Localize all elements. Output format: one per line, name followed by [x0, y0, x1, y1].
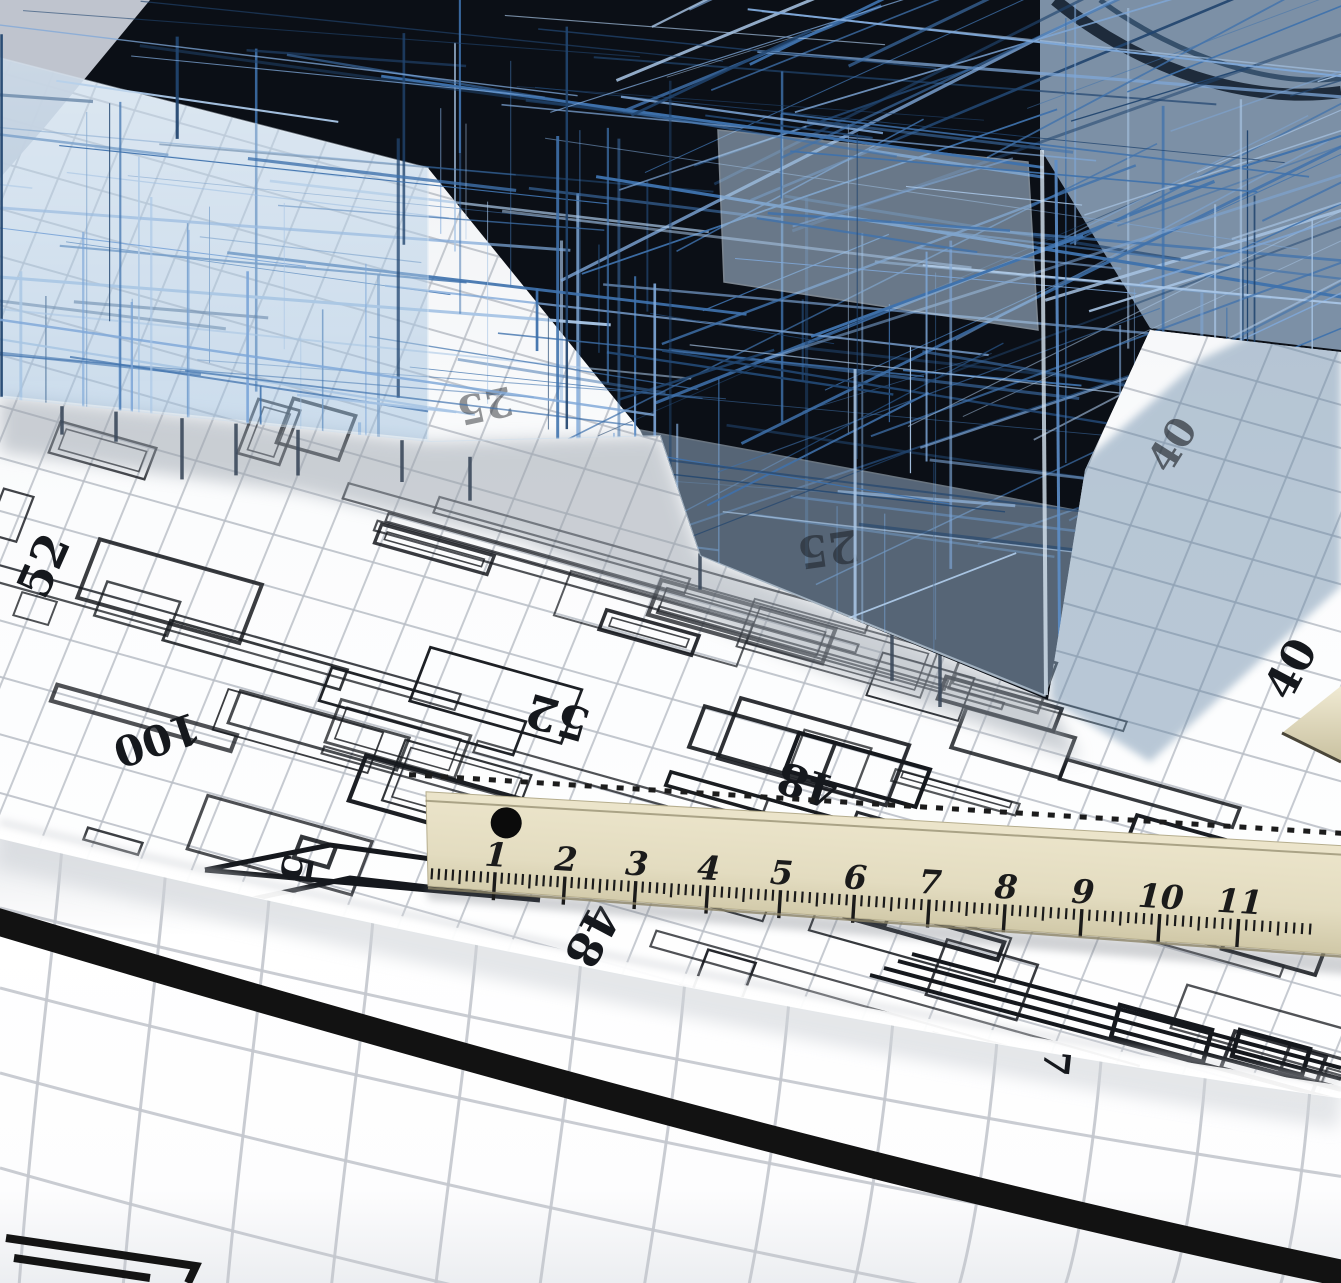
generated-line — [809, 892, 810, 903]
generated-line — [765, 889, 766, 900]
generated-line — [593, 878, 594, 889]
generated-line — [508, 873, 509, 884]
generated-line — [787, 891, 788, 902]
generated-line — [853, 895, 855, 923]
generated-line — [571, 877, 572, 888]
generated-line — [1136, 913, 1137, 924]
generated-line — [550, 876, 551, 887]
generated-line — [1310, 924, 1311, 935]
generated-line — [1302, 923, 1303, 934]
generated-line — [493, 872, 495, 900]
generated-line — [861, 895, 862, 906]
generated-line — [1027, 906, 1028, 917]
generated-line — [869, 896, 870, 907]
generated-line — [1074, 909, 1075, 920]
generated-line — [515, 874, 516, 885]
generated-line — [607, 879, 608, 890]
generated-line — [714, 886, 715, 897]
generated-line — [729, 887, 730, 898]
ruler-number: 8 — [992, 867, 1018, 907]
ruler-number: 5 — [769, 853, 794, 893]
generated-line — [997, 904, 998, 915]
generated-line — [1020, 905, 1021, 916]
generated-line — [693, 885, 694, 896]
generated-line — [628, 881, 629, 892]
ruler-number: 9 — [1070, 872, 1095, 912]
generated-line — [773, 890, 774, 901]
generated-line — [751, 888, 752, 899]
generated-line — [824, 893, 825, 904]
generated-line — [1183, 916, 1184, 927]
generated-line — [1278, 922, 1279, 936]
generated-line — [1080, 909, 1082, 937]
generated-line — [1158, 914, 1160, 942]
generated-line — [1222, 918, 1223, 929]
generated-line — [621, 880, 622, 891]
generated-line — [529, 874, 530, 888]
generated-line — [1043, 907, 1044, 921]
generated-line — [439, 869, 440, 880]
generated-line — [452, 870, 453, 881]
generated-line — [832, 893, 833, 904]
generated-line — [459, 870, 460, 884]
generated-line — [1230, 919, 1231, 930]
generated-line — [1050, 907, 1051, 918]
generated-line — [1167, 915, 1168, 926]
generated-line — [466, 870, 467, 881]
generated-line — [1128, 912, 1129, 923]
generated-line — [700, 885, 701, 896]
generated-line — [1003, 904, 1005, 932]
generated-line — [536, 875, 537, 886]
scene-image: 52 100 52 48 48 5 40 40 7 25 25 1 — [0, 0, 1341, 1283]
generated-line — [951, 901, 952, 912]
generated-line — [649, 882, 650, 893]
generated-line — [1270, 921, 1271, 932]
generated-line — [473, 871, 474, 882]
generated-line — [1097, 910, 1098, 921]
generated-line — [501, 873, 502, 884]
generated-line — [914, 899, 915, 910]
ruler-number: 10 — [1137, 876, 1185, 918]
ruler-number: 7 — [918, 862, 943, 902]
generated-line — [839, 894, 840, 905]
generated-line — [795, 891, 796, 902]
architectural-render-scene: 52 100 52 48 48 5 40 40 7 25 25 1 — [0, 0, 1341, 1283]
generated-line — [1120, 912, 1121, 926]
generated-line — [936, 900, 937, 911]
generated-line — [989, 903, 990, 914]
generated-line — [671, 883, 672, 897]
generated-line — [432, 868, 433, 879]
generated-line — [884, 897, 885, 908]
generated-line — [1254, 920, 1255, 931]
generated-line — [817, 893, 818, 907]
generated-line — [743, 888, 744, 902]
generated-line — [1206, 917, 1207, 928]
generated-line — [1058, 908, 1059, 919]
generated-line — [876, 896, 877, 907]
generated-line — [445, 869, 446, 880]
generated-line — [1089, 910, 1090, 921]
generated-line — [899, 898, 900, 909]
generated-line — [543, 875, 544, 886]
ruler-number: 4 — [696, 848, 721, 888]
ruler-number: 6 — [843, 857, 868, 897]
generated-line — [1237, 919, 1239, 947]
generated-line — [944, 901, 945, 912]
generated-line — [758, 889, 759, 900]
generated-line — [586, 878, 587, 889]
ruler-number: 11 — [1216, 881, 1264, 923]
generated-line — [891, 897, 892, 911]
generated-line — [1035, 906, 1036, 917]
generated-line — [1175, 915, 1176, 926]
generated-line — [1191, 916, 1192, 927]
generated-line — [642, 882, 643, 893]
generated-line — [921, 899, 922, 910]
generated-line — [1112, 911, 1113, 922]
generated-line — [664, 883, 665, 894]
generated-line — [1012, 905, 1013, 916]
generated-line — [1262, 921, 1263, 932]
ruler-number: 1 — [484, 835, 509, 875]
generated-line — [1214, 918, 1215, 929]
ruler-number: 2 — [552, 839, 578, 879]
generated-line — [685, 884, 686, 895]
generated-line — [846, 894, 847, 905]
generated-line — [1151, 914, 1152, 925]
generated-line — [736, 887, 737, 898]
generated-line — [1144, 913, 1145, 924]
generated-line — [678, 884, 679, 895]
generated-line — [557, 876, 558, 887]
generated-line — [722, 887, 723, 898]
generated-line — [1105, 911, 1106, 922]
generated-line — [974, 902, 975, 913]
generated-line — [982, 903, 983, 914]
generated-line — [563, 877, 565, 905]
generated-line — [1066, 908, 1067, 919]
glass-dimension-label: 25 — [794, 519, 862, 578]
generated-line — [578, 878, 579, 889]
generated-line — [966, 902, 967, 916]
generated-line — [906, 898, 907, 909]
generated-line — [480, 871, 481, 882]
generated-line — [600, 879, 601, 893]
generated-line — [657, 882, 658, 893]
generated-line — [1286, 922, 1287, 933]
generated-line — [1198, 917, 1199, 931]
generated-line — [614, 880, 615, 891]
dimension-label: 7 — [1034, 1049, 1078, 1078]
generated-line — [487, 872, 488, 883]
ruler-number: 3 — [624, 843, 649, 883]
generated-line — [1246, 920, 1247, 931]
generated-line — [1294, 923, 1295, 934]
generated-line — [802, 892, 803, 903]
generated-line — [959, 901, 960, 912]
generated-line — [522, 874, 523, 885]
generated-line — [927, 900, 929, 928]
